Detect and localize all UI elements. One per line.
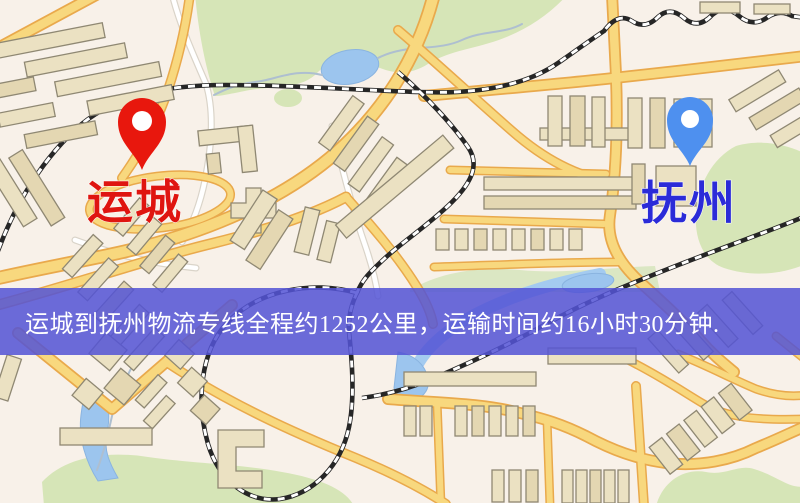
logistics-route-map: 运城 抚州 运城到抚州物流专线全程约1252公里，运输时间约16小时30分钟. bbox=[0, 0, 800, 503]
route-info-banner: 运城到抚州物流专线全程约1252公里，运输时间约16小时30分钟. bbox=[0, 288, 800, 355]
destination-pin-hole bbox=[681, 110, 699, 128]
origin-label: 运城 bbox=[87, 177, 183, 228]
route-info-text: 运城到抚州物流专线全程约1252公里，运输时间约16小时30分钟. bbox=[25, 304, 720, 339]
destination-label: 抚州 bbox=[641, 178, 737, 229]
map-canvas[interactable]: 运城 抚州 bbox=[0, 0, 800, 503]
origin-pin-hole bbox=[132, 111, 152, 131]
